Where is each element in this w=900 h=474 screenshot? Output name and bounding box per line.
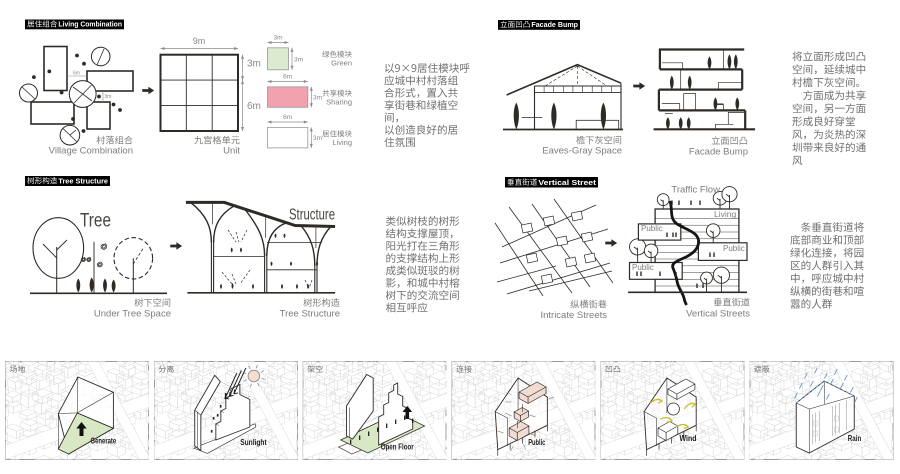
svg-text:Living: Living <box>332 138 352 147</box>
svg-text:Vertical Streets: Vertical Streets <box>686 309 750 320</box>
svg-text:Wind: Wind <box>680 434 697 443</box>
svg-text:Tree Structure: Tree Structure <box>58 176 108 185</box>
svg-text:Tree Structure: Tree Structure <box>280 309 340 320</box>
svg-text:Structure: Structure <box>289 207 335 224</box>
svg-text:Unit: Unit <box>223 146 240 157</box>
svg-text:Public: Public <box>723 244 745 253</box>
svg-text:Generate: Generate <box>91 437 117 446</box>
svg-text:Rain: Rain <box>848 434 862 443</box>
svg-text:Public: Public <box>528 438 545 447</box>
svg-text:3m: 3m <box>313 95 322 102</box>
svg-text:3m: 3m <box>273 35 282 42</box>
svg-text:Traffic Flow: Traffic Flow <box>671 185 720 196</box>
svg-text:Facade Bump: Facade Bump <box>531 20 578 29</box>
svg-text:6m: 6m <box>283 74 292 81</box>
svg-text:Public: Public <box>632 263 654 272</box>
svg-text:Green: Green <box>331 59 352 68</box>
svg-text:Sharing: Sharing <box>326 98 352 107</box>
svg-text:Sunlight: Sunlight <box>240 438 267 447</box>
svg-text:3m: 3m <box>247 59 261 70</box>
svg-text:9m: 9m <box>193 36 206 46</box>
svg-text:3m: 3m <box>294 57 303 64</box>
svg-text:Living Combination: Living Combination <box>58 20 122 29</box>
svg-text:Under Tree Space: Under Tree Space <box>94 309 171 320</box>
svg-text:3m: 3m <box>313 135 322 142</box>
svg-text:Public: Public <box>641 224 663 233</box>
svg-text:Intricate Streets: Intricate Streets <box>540 310 607 321</box>
svg-text:6m: 6m <box>73 71 80 77</box>
svg-text:6m: 6m <box>247 101 261 112</box>
svg-text:Open Floor: Open Floor <box>381 443 414 452</box>
svg-text:Eaves-Gray Space: Eaves-Gray Space <box>542 146 622 157</box>
svg-text:3m: 3m <box>105 94 112 100</box>
svg-text:Vertical Street: Vertical Street <box>538 178 596 187</box>
svg-text:6m: 6m <box>283 114 292 121</box>
svg-text:Living: Living <box>714 209 736 219</box>
svg-text:Village Combination: Village Combination <box>49 146 133 157</box>
svg-text:Tree: Tree <box>80 211 111 232</box>
svg-text:Facade Bump: Facade Bump <box>689 147 748 158</box>
